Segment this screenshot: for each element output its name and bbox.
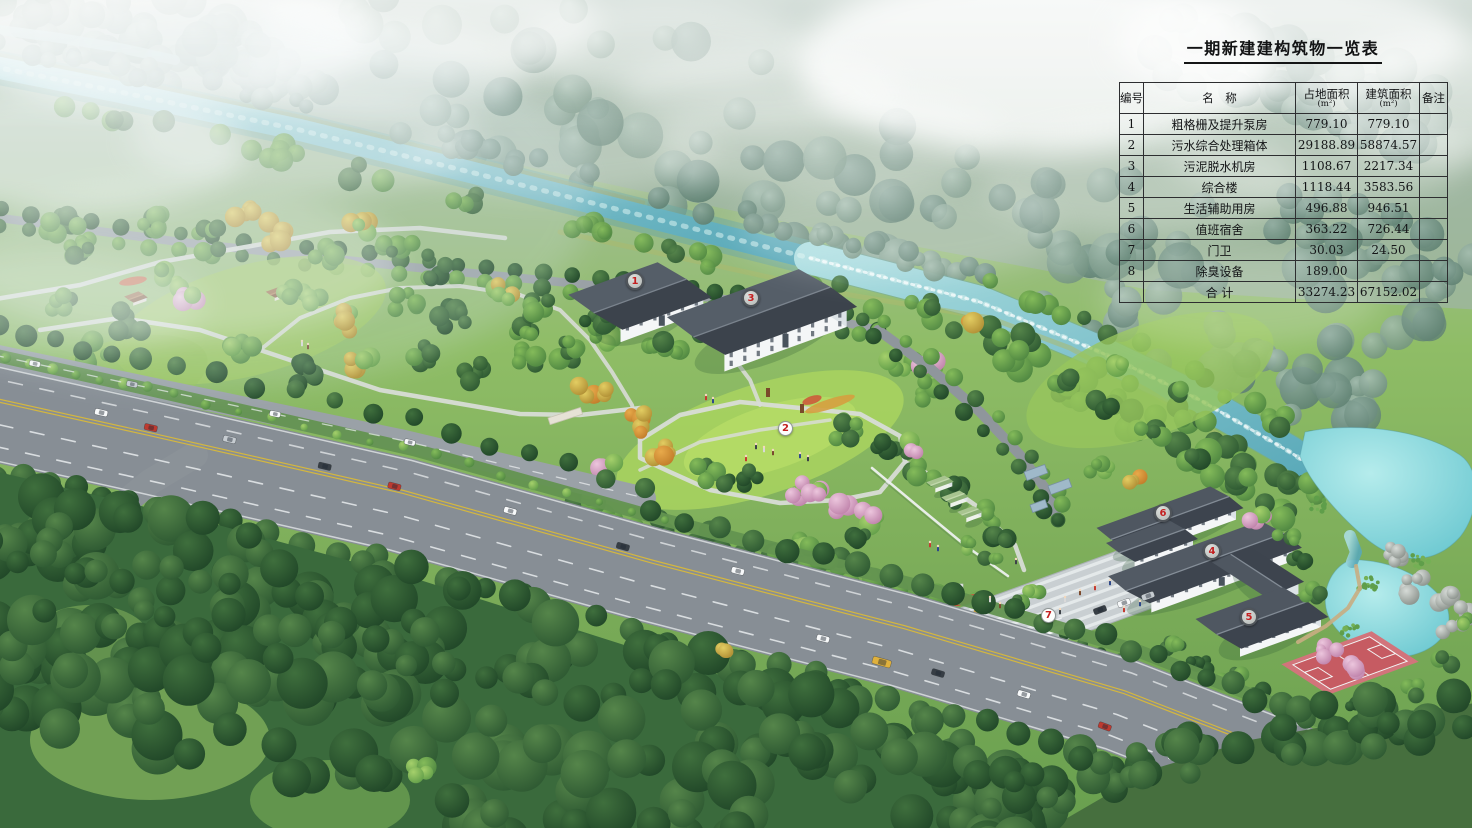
table-row: 3污泥脱水机房1108.672217.34 — [1120, 156, 1448, 177]
table-row: 1粗格栅及提升泵房779.10779.10 — [1120, 114, 1448, 135]
table-row: 2污水综合处理箱体29188.8958874.57 — [1120, 135, 1448, 156]
marker-label: 2 — [782, 423, 789, 434]
marker-label: 7 — [1045, 610, 1052, 621]
table-row: 4综合楼1118.443583.56 — [1120, 177, 1448, 198]
marker-label: 6 — [1160, 508, 1167, 519]
table-row: 7门卫30.0324.50 — [1120, 240, 1448, 261]
col-header-name: 名 称 — [1144, 83, 1296, 114]
col-header-build-area: 建筑面积(m²) — [1358, 83, 1420, 114]
marker-label: 3 — [748, 293, 755, 304]
aerial-site-rendering: 1 2 3 4 5 6 7 一期新建建构筑物一览表 编号 名 称 占地面积(m²… — [0, 0, 1472, 828]
marker-building-3: 3 — [742, 289, 760, 307]
marker-building-7: 7 — [1041, 608, 1056, 623]
col-header-land-area: 占地面积(m²) — [1296, 83, 1358, 114]
marker-label: 4 — [1209, 546, 1216, 557]
marker-building-1: 1 — [626, 272, 644, 290]
table-title: 一期新建建构筑物一览表 — [1119, 35, 1447, 64]
structures-table: 编号 名 称 占地面积(m²) 建筑面积(m²) 备注 1粗格栅及提升泵房779… — [1119, 82, 1448, 303]
table-total-row: 合 计33274.2367152.02 — [1120, 282, 1448, 303]
marker-building-4: 4 — [1203, 542, 1221, 560]
table-row: 5生活辅助用房496.88946.51 — [1120, 198, 1448, 219]
marker-label: 5 — [1246, 612, 1253, 623]
marker-building-6: 6 — [1154, 504, 1172, 522]
marker-label: 1 — [632, 276, 639, 287]
col-header-no: 编号 — [1120, 83, 1144, 114]
marker-building-5: 5 — [1240, 608, 1258, 626]
col-header-remark: 备注 — [1420, 83, 1448, 114]
marker-building-2: 2 — [778, 421, 793, 436]
table-row: 6值班宿舍363.22726.44 — [1120, 219, 1448, 240]
table-row: 8除臭设备189.00 — [1120, 261, 1448, 282]
table-header-row: 编号 名 称 占地面积(m²) 建筑面积(m²) 备注 — [1120, 83, 1448, 114]
